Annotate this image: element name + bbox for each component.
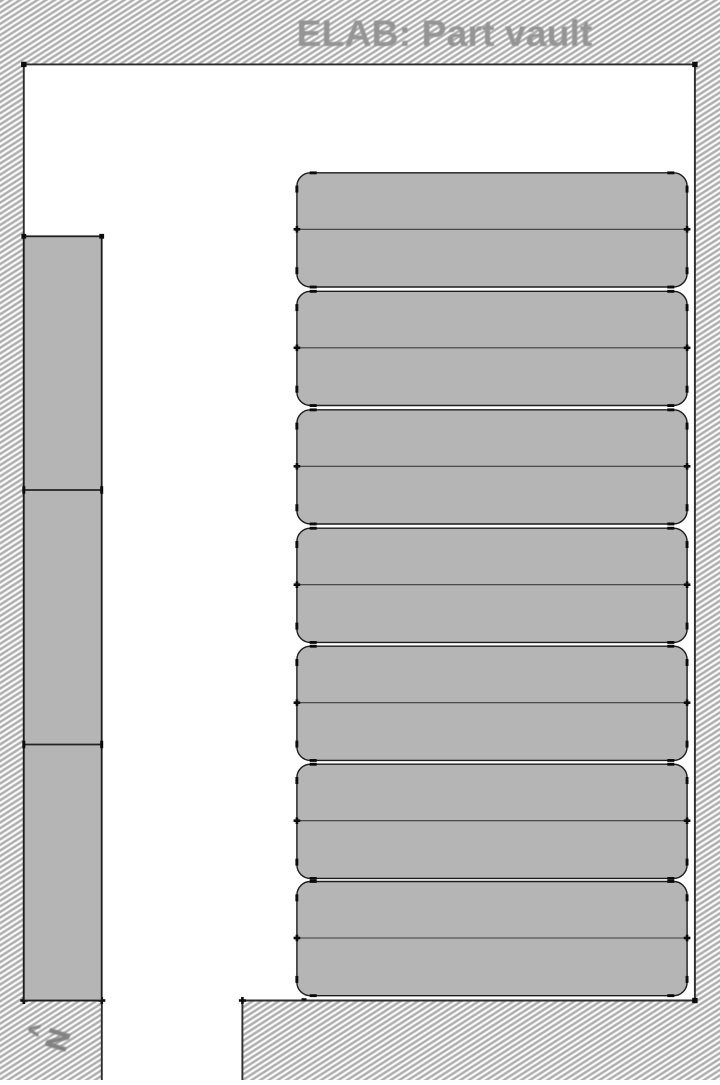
svg-text:ELAB: Part vault: ELAB: Part vault [297, 12, 593, 54]
